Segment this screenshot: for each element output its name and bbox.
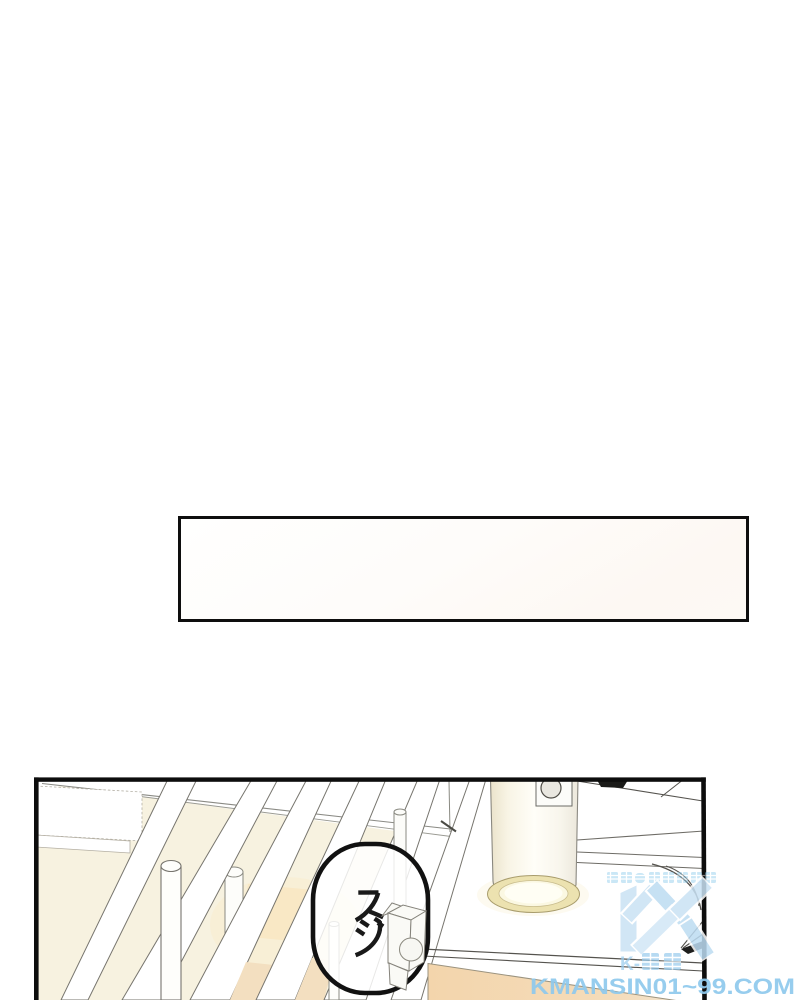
svg-text:K-: K-	[620, 954, 640, 975]
svg-text:KMANSIN01~99.COM: KMANSIN01~99.COM	[530, 974, 795, 999]
